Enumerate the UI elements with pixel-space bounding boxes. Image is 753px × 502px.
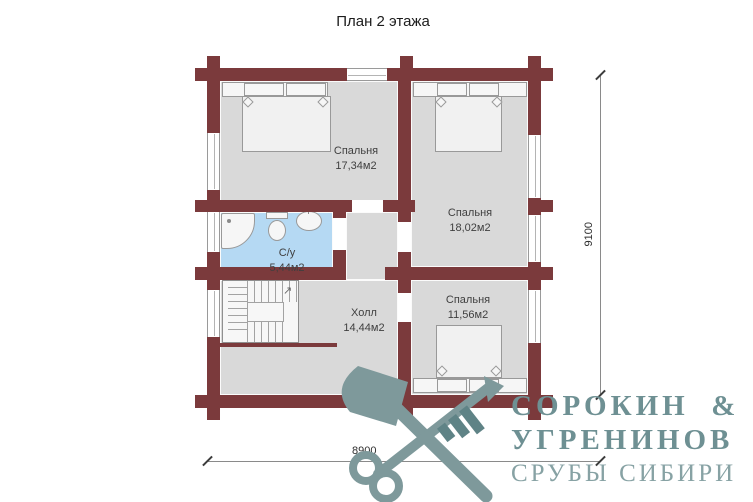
window bbox=[528, 135, 541, 198]
toilet-bowl bbox=[268, 220, 286, 241]
crossed-axe-and-key-icon bbox=[336, 356, 528, 502]
wall-segment bbox=[398, 68, 411, 222]
door-opening bbox=[398, 293, 411, 322]
door-opening bbox=[398, 222, 411, 252]
room-name: Спальня bbox=[448, 206, 492, 221]
door-opening bbox=[352, 200, 383, 212]
room-label-bedroom-1: Спальня 17,34м2 bbox=[334, 144, 378, 174]
pillow bbox=[437, 83, 467, 96]
pillow bbox=[469, 83, 499, 96]
double-bed bbox=[435, 96, 502, 152]
room-label-bathroom: С/у 5,44м2 bbox=[269, 246, 304, 276]
room-name: Спальня bbox=[334, 144, 378, 159]
log-end bbox=[540, 200, 553, 212]
stair-railing-wall bbox=[220, 343, 337, 347]
pillow bbox=[286, 83, 326, 96]
door-opening bbox=[333, 218, 346, 250]
room-name: С/у bbox=[269, 246, 304, 261]
floor-plan-page: План 2 этажа ↗ bbox=[0, 0, 753, 502]
room-area: 14,44м2 bbox=[343, 321, 384, 336]
room-name: Спальня bbox=[446, 293, 490, 308]
window bbox=[528, 290, 541, 343]
window bbox=[347, 68, 387, 81]
dimension-line-vertical bbox=[600, 75, 601, 395]
room-label-bedroom-3: Спальня 11,56м2 bbox=[446, 293, 490, 323]
toilet-tank bbox=[266, 212, 288, 219]
room-area: 18,02м2 bbox=[448, 221, 492, 236]
log-end bbox=[540, 267, 553, 280]
window bbox=[207, 290, 220, 337]
pillow bbox=[244, 83, 284, 96]
window bbox=[528, 215, 541, 262]
wall-segment bbox=[333, 200, 346, 218]
sink bbox=[296, 211, 322, 231]
room-name: Холл bbox=[343, 306, 384, 321]
wall-segment bbox=[207, 200, 352, 212]
window bbox=[207, 133, 220, 190]
double-bed bbox=[242, 96, 331, 152]
window bbox=[207, 212, 220, 252]
logo-tagline: СРУБЫ СИБИРИ bbox=[511, 460, 736, 488]
stair-direction-arrow-icon: ↗ bbox=[283, 284, 292, 297]
wall-segment bbox=[385, 267, 541, 280]
logo-company-name-line2: УГРЕНИНОВ bbox=[511, 424, 733, 457]
room-label-bedroom-2: Спальня 18,02м2 bbox=[448, 206, 492, 236]
shower-drain bbox=[227, 219, 231, 223]
room-area: 5,44м2 bbox=[269, 261, 304, 276]
room-area: 11,56м2 bbox=[446, 308, 490, 323]
room-label-hall: Холл 14,44м2 bbox=[343, 306, 384, 336]
logo-company-name-line1: СОРОКИН & bbox=[511, 390, 739, 423]
plan-title: План 2 этажа bbox=[336, 13, 430, 30]
stair-treads-return bbox=[228, 287, 247, 334]
room-area: 17,34м2 bbox=[334, 159, 378, 174]
dimension-label-vertical: 9100 bbox=[583, 222, 595, 246]
stair-treads-lower bbox=[247, 322, 284, 342]
stair-landing bbox=[247, 302, 284, 322]
